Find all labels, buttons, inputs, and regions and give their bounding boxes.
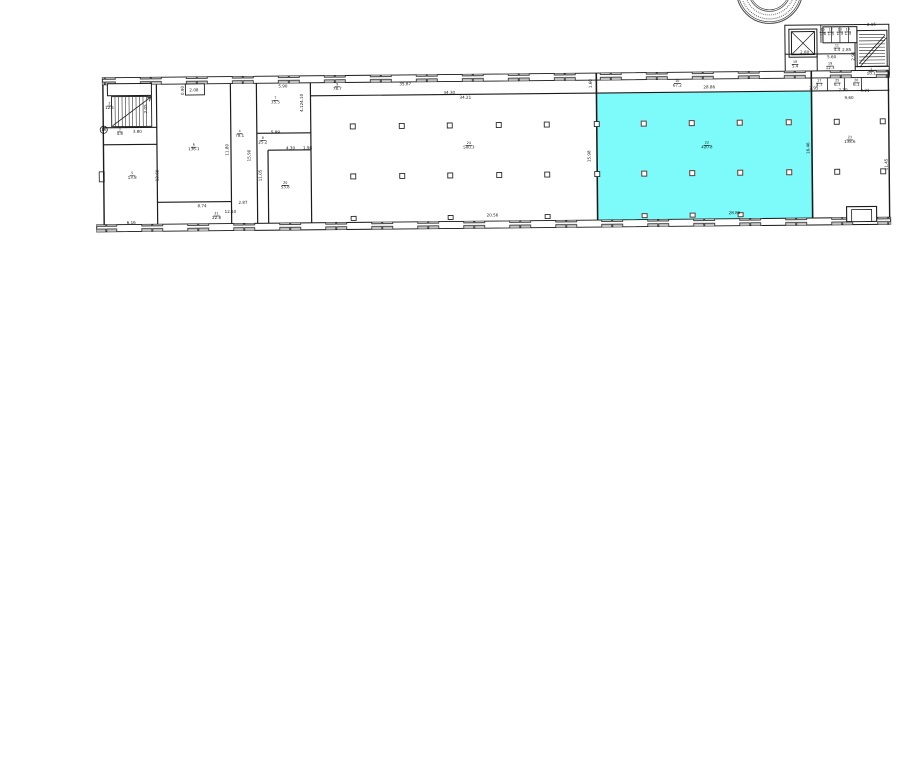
dimension-text: 1.60 xyxy=(588,79,593,88)
grid-axis-marker: 16 xyxy=(100,126,108,134)
dimension-text: 1.98 xyxy=(303,146,312,151)
dimension-text: 15.98 xyxy=(587,150,592,162)
dimension-text: 2.95 xyxy=(809,86,818,91)
dimension-text: 2.87 xyxy=(238,200,247,205)
dimension-text: 28.86 xyxy=(729,211,741,216)
dimension-text: 8.74 xyxy=(198,204,207,209)
column xyxy=(641,121,646,126)
dimension-text: 9.60 xyxy=(844,96,853,101)
dimension-text: 5.99 xyxy=(271,130,280,135)
room-label: 185.4 xyxy=(787,60,803,69)
dimension-text: 11.45 xyxy=(884,159,889,171)
dimension-text: 2.08 xyxy=(189,88,198,93)
room-label: 825.2 xyxy=(255,136,271,145)
column xyxy=(447,123,452,128)
column xyxy=(642,171,647,176)
entrance-vestibule xyxy=(847,206,877,221)
pilaster xyxy=(545,215,550,219)
dimension-text: 34.30 xyxy=(443,90,455,95)
column xyxy=(880,119,885,124)
column xyxy=(689,121,694,126)
dimension-text: 2.70 xyxy=(838,88,847,93)
dimension-text: 12.10 xyxy=(225,210,237,215)
column xyxy=(737,120,742,125)
dimension-text: 16.46 xyxy=(806,142,811,154)
dimension-text: 4.30 xyxy=(286,146,295,151)
dimension-text: 2.05 xyxy=(144,104,149,113)
dimension-text: 15.90 xyxy=(247,150,252,162)
pilaster xyxy=(594,122,599,127)
floor-plan-canvas: 212.5 34.8 513.8 6136.1 478.1 735.5 825.… xyxy=(0,0,903,766)
dimension-text: 5.90 xyxy=(278,84,287,89)
column xyxy=(399,123,404,128)
room-label: 266.1 xyxy=(848,79,864,88)
column xyxy=(350,124,355,129)
room-label: 22420.8 xyxy=(699,141,715,150)
room-label: 256.7 xyxy=(829,79,845,88)
pilaster xyxy=(690,213,695,217)
column xyxy=(738,170,743,175)
column xyxy=(834,119,839,124)
column xyxy=(835,169,840,174)
room-label: 1912.3 xyxy=(822,62,838,71)
dimension-text: 2.15 xyxy=(867,22,876,27)
pilaster xyxy=(595,172,600,177)
dimension-text: 11.80 xyxy=(225,144,230,156)
room-label: 212.5 xyxy=(102,102,118,111)
dimension-text: 5.60 xyxy=(827,55,836,60)
room-label: 110.1 xyxy=(863,67,879,76)
room-label: 34.8 xyxy=(112,128,128,137)
room-label: 735.5 xyxy=(267,96,283,105)
dimension-text: 4.12 xyxy=(300,103,305,112)
column xyxy=(786,120,791,125)
dimension-text: 2.85 xyxy=(842,48,851,53)
plan-rotated-group: 212.5 34.8 513.8 6136.1 478.1 735.5 825.… xyxy=(0,0,903,766)
room-label: 513.8 xyxy=(124,171,140,180)
column xyxy=(351,174,356,179)
column xyxy=(690,171,695,176)
pilaster xyxy=(448,215,453,219)
room-label: 6136.1 xyxy=(186,143,202,152)
seal-stamp xyxy=(736,0,803,24)
dimension-text: 6.16 xyxy=(127,220,136,225)
dimension-text: 0.90 xyxy=(180,86,185,95)
column xyxy=(545,172,550,177)
plan-drawing xyxy=(0,0,903,766)
dimension-text: 4.10 xyxy=(299,94,304,103)
dimension-text: 12.60 xyxy=(155,170,160,182)
dimension-text: 11.05 xyxy=(258,170,263,182)
room-label: 978.7 xyxy=(329,82,345,91)
room-label: 141.3 xyxy=(840,28,856,37)
room-label: 478.1 xyxy=(232,129,248,138)
column xyxy=(787,170,792,175)
column xyxy=(448,173,453,178)
room-label: 2122.8 xyxy=(209,212,225,221)
room-label: 2053.8 xyxy=(277,181,293,190)
dimension-text: 2.80 xyxy=(800,50,809,55)
dimension-text: 20.56 xyxy=(487,213,499,218)
highlighted-room[interactable] xyxy=(597,92,812,221)
dimension-text: 35.87 xyxy=(399,82,411,87)
pilaster xyxy=(351,216,356,220)
column xyxy=(497,172,502,177)
dimension-text: 2.90 xyxy=(851,51,856,60)
column xyxy=(544,122,549,127)
column xyxy=(496,122,501,127)
window-band-top xyxy=(102,70,889,85)
room-label: 23138.6 xyxy=(842,136,858,145)
room-label: 24500.3 xyxy=(461,141,477,150)
pilaster xyxy=(642,214,647,218)
dimension-text: 34.21 xyxy=(459,95,471,100)
dimension-text: 3.80 xyxy=(133,129,142,134)
dimension-text: 28.86 xyxy=(703,85,715,90)
room-label: 1067.2 xyxy=(669,79,685,88)
dimension-text: 3.21 xyxy=(860,88,869,93)
entry-canopy xyxy=(107,83,151,95)
column xyxy=(400,173,405,178)
